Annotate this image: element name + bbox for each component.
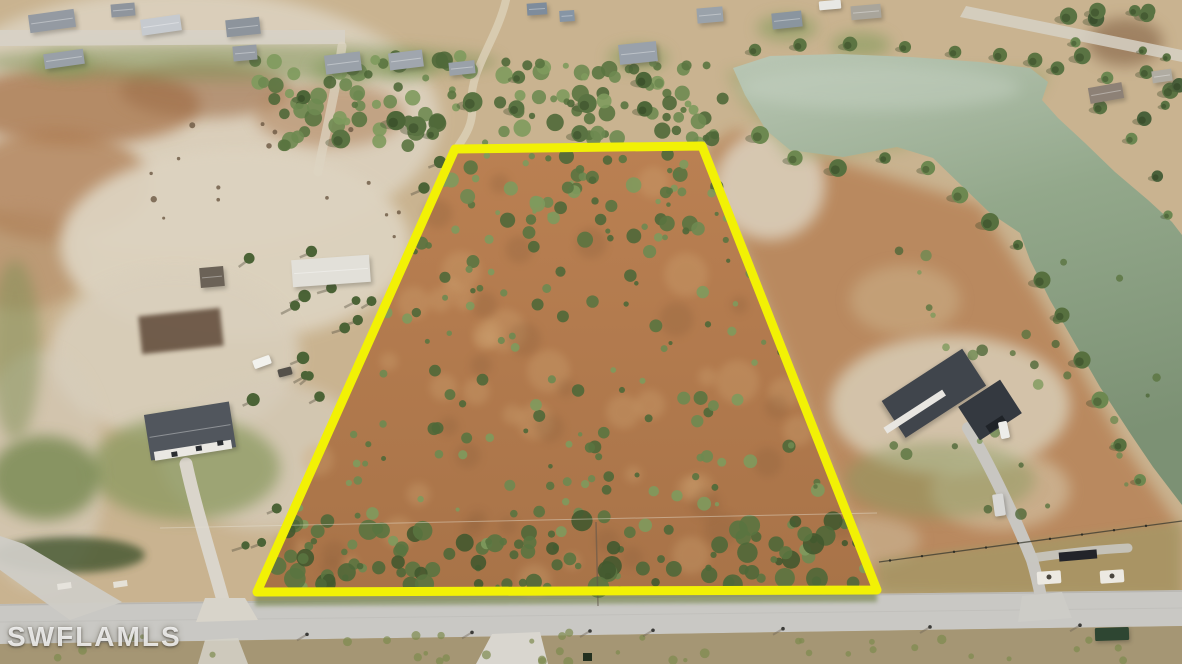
watermark-logo-text: SWFLAMLS bbox=[7, 621, 182, 653]
aerial-photo-canvas bbox=[0, 0, 1182, 664]
aerial-photo: SWFLAMLS bbox=[0, 0, 1182, 664]
